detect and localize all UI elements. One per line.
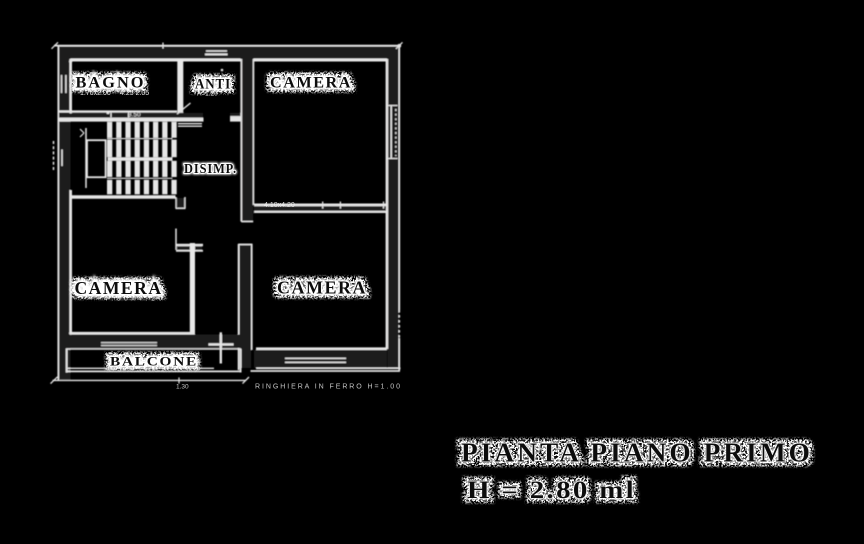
- svg-text:4.30x4.20: 4.30x4.20: [104, 296, 162, 303]
- svg-text:3.50: 3.50: [128, 112, 141, 119]
- svg-text:BAGNO: BAGNO: [76, 75, 146, 92]
- svg-text:4.10x4.20: 4.10x4.20: [264, 202, 295, 209]
- svg-text:4.25 2.05: 4.25 2.05: [120, 90, 149, 97]
- svg-text:PIANTA PIANO PRIMO: PIANTA PIANO PRIMO: [461, 438, 813, 468]
- svg-text:1.30: 1.30: [176, 384, 189, 391]
- svg-text:CAMERA: CAMERA: [270, 75, 352, 92]
- svg-text:A=1.20: A=1.20: [197, 91, 218, 98]
- svg-text:BALCONE: BALCONE: [110, 354, 198, 369]
- svg-text:1.70x2.00: 1.70x2.00: [80, 90, 111, 97]
- svg-text:RINGHIERA IN FERRO H=1.00: RINGHIERA IN FERRO H=1.00: [255, 384, 400, 391]
- svg-text:DISIMP.: DISIMP.: [184, 162, 237, 177]
- svg-text:H = 2.80 ml: H = 2.80 ml: [467, 477, 636, 504]
